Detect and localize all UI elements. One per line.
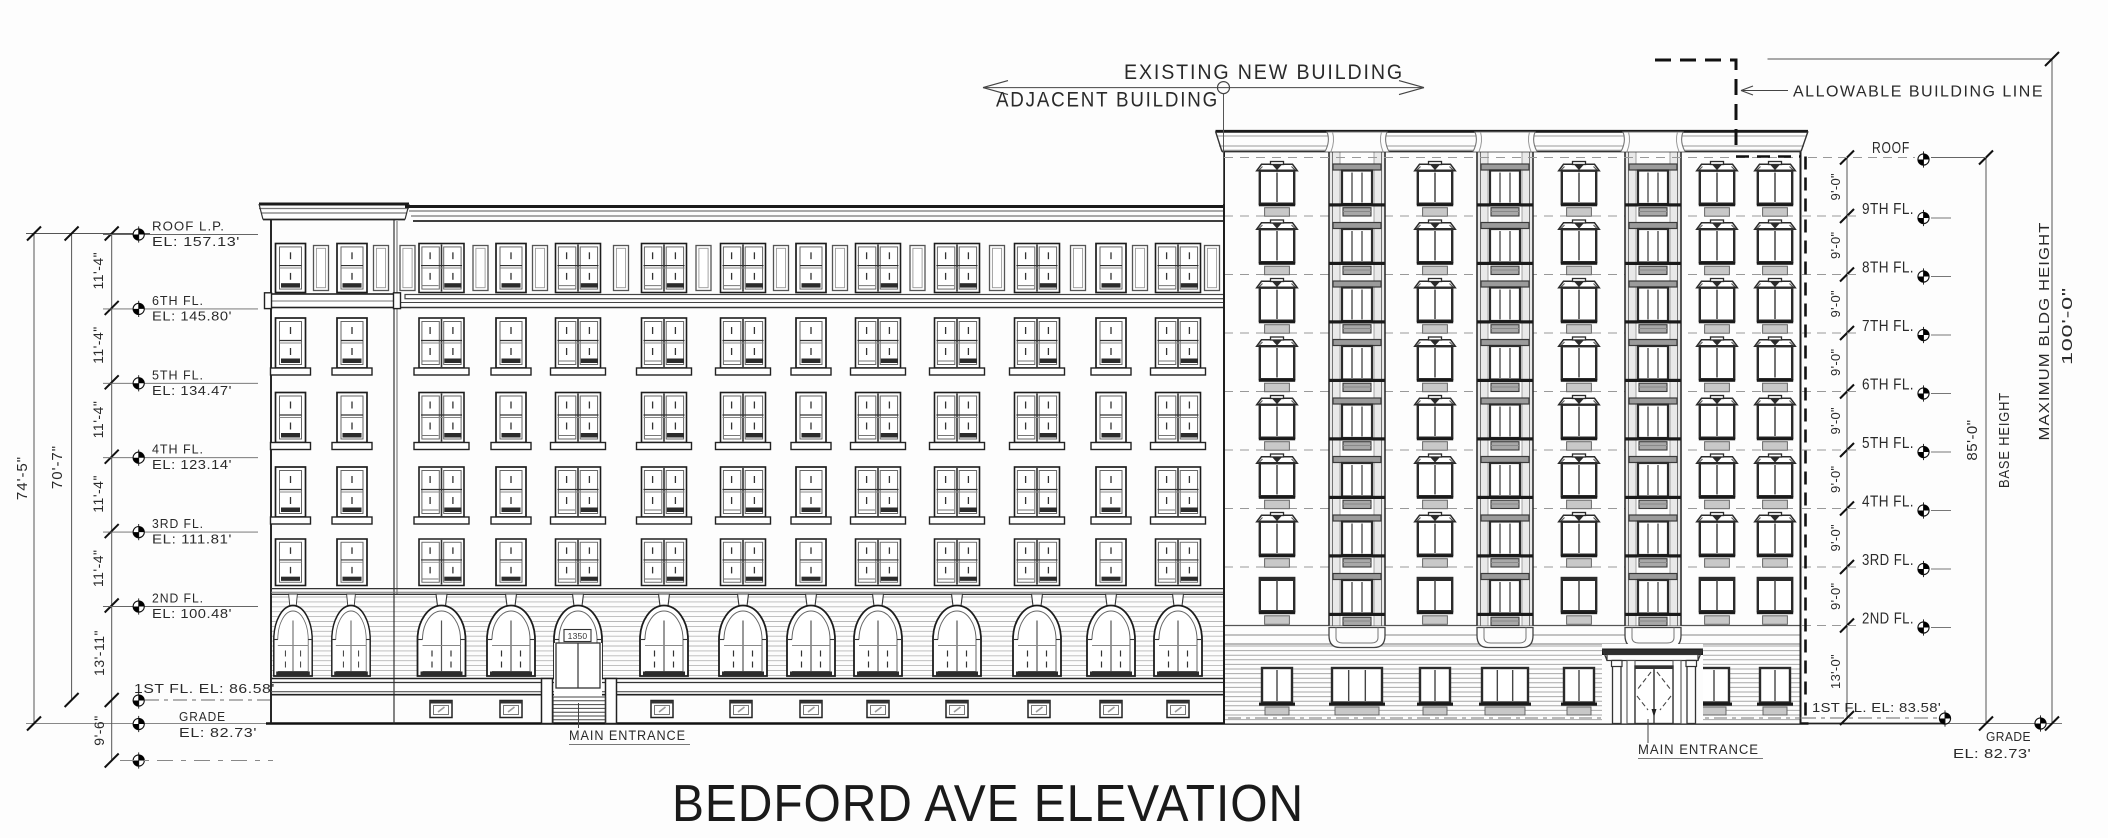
svg-text:4TH FL.: 4TH FL. bbox=[1862, 494, 1914, 511]
svg-text:5TH FL.: 5TH FL. bbox=[152, 367, 204, 382]
svg-text:11'-4": 11'-4" bbox=[90, 326, 106, 364]
svg-text:9'-0": 9'-0" bbox=[1828, 407, 1843, 434]
svg-text:9'-0": 9'-0" bbox=[1828, 173, 1843, 200]
svg-text:11'-4": 11'-4" bbox=[90, 252, 106, 290]
svg-text:6TH FL.: 6TH FL. bbox=[152, 293, 204, 308]
svg-text:GRADE: GRADE bbox=[179, 709, 226, 724]
svg-text:EL: 82.73': EL: 82.73' bbox=[1953, 746, 2031, 761]
svg-text:EXISTING NEW BUILDING: EXISTING NEW BUILDING bbox=[1124, 61, 1404, 84]
svg-text:1ST FL. EL: 83.58': 1ST FL. EL: 83.58' bbox=[1812, 700, 1941, 715]
svg-text:ROOF: ROOF bbox=[1872, 140, 1910, 157]
svg-text:ALLOWABLE BUILDING LINE: ALLOWABLE BUILDING LINE bbox=[1793, 84, 2044, 101]
svg-text:74'-5": 74'-5" bbox=[14, 456, 31, 500]
svg-text:13'-11": 13'-11" bbox=[91, 630, 107, 676]
svg-text:2ND FL.: 2ND FL. bbox=[1862, 611, 1914, 628]
svg-text:MAIN ENTRANCE: MAIN ENTRANCE bbox=[1638, 742, 1759, 757]
svg-text:2ND FL.: 2ND FL. bbox=[152, 591, 204, 606]
svg-text:1ST FL. EL: 86.58': 1ST FL. EL: 86.58' bbox=[134, 681, 275, 696]
svg-text:EL: 157.13': EL: 157.13' bbox=[152, 234, 240, 249]
svg-text:MAIN ENTRANCE: MAIN ENTRANCE bbox=[569, 728, 686, 743]
svg-text:9'-0": 9'-0" bbox=[1828, 348, 1843, 375]
svg-text:3RD FL.: 3RD FL. bbox=[1862, 552, 1914, 569]
svg-text:MAXIMUM BLDG HEIGHT: MAXIMUM BLDG HEIGHT bbox=[2036, 222, 2053, 441]
svg-text:8TH FL.: 8TH FL. bbox=[1862, 260, 1914, 277]
svg-text:3RD FL.: 3RD FL. bbox=[152, 516, 204, 531]
svg-text:11'-4": 11'-4" bbox=[90, 549, 106, 587]
svg-text:EL: 134.47': EL: 134.47' bbox=[152, 383, 232, 398]
svg-text:7TH FL.: 7TH FL. bbox=[1862, 318, 1914, 335]
svg-text:6TH FL.: 6TH FL. bbox=[1862, 377, 1914, 394]
svg-text:11'-4": 11'-4" bbox=[90, 475, 106, 513]
svg-text:BASE HEIGHT: BASE HEIGHT bbox=[1996, 392, 2013, 488]
svg-text:EL: 123.14': EL: 123.14' bbox=[152, 457, 232, 472]
svg-text:ADJACENT BUILDING: ADJACENT BUILDING bbox=[996, 89, 1219, 112]
svg-text:ROOF L.P.: ROOF L.P. bbox=[152, 219, 225, 234]
svg-text:GRADE: GRADE bbox=[1986, 729, 2031, 744]
svg-text:9'-0": 9'-0" bbox=[1828, 524, 1843, 551]
svg-text:EL: 145.80': EL: 145.80' bbox=[152, 308, 232, 323]
svg-text:9'-0": 9'-0" bbox=[1828, 290, 1843, 317]
svg-text:9'-0": 9'-0" bbox=[1828, 465, 1843, 492]
svg-text:11'-4": 11'-4" bbox=[90, 401, 106, 439]
svg-text:EL: 82.73': EL: 82.73' bbox=[179, 725, 257, 740]
svg-text:9TH FL.: 9TH FL. bbox=[1862, 201, 1914, 218]
svg-text:EL: 111.81': EL: 111.81' bbox=[152, 532, 232, 547]
svg-text:EL: 100.48': EL: 100.48' bbox=[152, 606, 232, 621]
svg-text:70'-7": 70'-7" bbox=[49, 445, 66, 489]
svg-text:9'-6": 9'-6" bbox=[91, 715, 107, 745]
svg-text:85'-0": 85'-0" bbox=[1964, 419, 1981, 460]
svg-text:100'-0": 100'-0" bbox=[2059, 287, 2076, 365]
svg-text:5TH FL.: 5TH FL. bbox=[1862, 435, 1914, 452]
svg-text:BEDFORD AVE ELEVATION: BEDFORD AVE ELEVATION bbox=[672, 775, 1304, 833]
svg-text:1350: 1350 bbox=[568, 631, 588, 641]
svg-text:13'-0": 13'-0" bbox=[1828, 654, 1843, 689]
svg-text:4TH FL.: 4TH FL. bbox=[152, 442, 204, 457]
svg-text:9'-0": 9'-0" bbox=[1828, 582, 1843, 609]
svg-text:9'-0": 9'-0" bbox=[1828, 231, 1843, 258]
